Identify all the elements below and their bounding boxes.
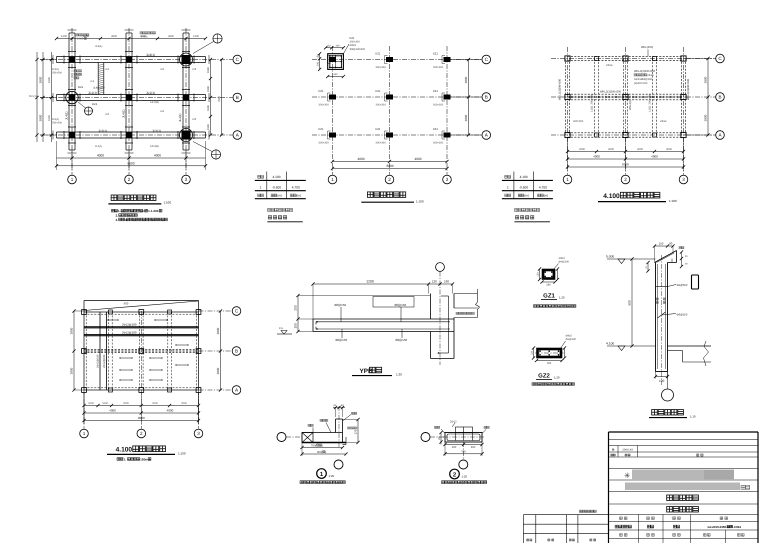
svg-text:7600: 7600 [218,96,221,102]
svg-text:✳: ✳ [624,471,630,480]
svg-text:370: 370 [355,429,358,434]
svg-text:3: 3 [682,177,685,182]
svg-text:1:10: 1:10 [690,415,696,419]
svg-text:60: 60 [669,241,673,245]
svg-text:1.: 1. [118,209,121,213]
svg-text:200×400: 200×400 [649,94,652,105]
svg-text:1: 1 [566,177,569,182]
svg-text:J-1: J-1 [90,79,94,83]
svg-text:): ) [322,444,323,447]
svg-text:3: 3 [446,177,449,182]
svg-text:150: 150 [659,241,664,245]
svg-text:350: 350 [334,73,339,76]
svg-text:2Φ12@180: 2Φ12@180 [97,354,100,368]
svg-text:150: 150 [327,44,332,47]
svg-text:150: 150 [316,54,319,59]
svg-text:KZ1: KZ1 [319,128,324,131]
svg-text:Φ6@200: Φ6@200 [677,314,688,317]
svg-text:1000: 1000 [102,402,108,405]
svg-text:1900: 1900 [207,105,210,111]
svg-text:=-1.200: =-1.200 [148,209,159,213]
svg-text:1000: 1000 [88,402,94,405]
svg-text:3800: 3800 [70,367,74,374]
svg-text:4.100: 4.100 [520,175,528,179]
svg-text:350×350: 350×350 [350,41,361,44]
svg-text:4Φ18: 4Φ18 [350,44,357,47]
svg-text:L1(1): L1(1) [591,106,594,112]
svg-text:3800: 3800 [704,76,708,83]
svg-text:JL1(1): JL1(1) [146,91,155,95]
svg-text:KZ1: KZ1 [319,90,324,93]
svg-text:120: 120 [536,272,539,277]
svg-text:200: 200 [336,44,341,47]
svg-text:150: 150 [294,323,298,329]
svg-text:JL3(1): JL3(1) [146,53,155,57]
svg-text:Φ8@150: Φ8@150 [394,303,406,307]
svg-text:8000: 8000 [127,161,134,165]
svg-text:350×350: 350×350 [376,66,387,69]
svg-text:240: 240 [546,283,551,286]
svg-text:300×500: 300×500 [559,78,562,89]
svg-text:1.: 1. [123,457,126,461]
svg-text:1200: 1200 [366,279,374,283]
svg-text:500: 500 [547,362,552,365]
svg-text:3800: 3800 [39,76,43,83]
svg-text:300: 300 [452,446,457,449]
svg-text:Φ6@200: Φ6@200 [559,261,570,264]
svg-text:2Φ14: 2Φ14 [606,64,613,67]
svg-text:1:100: 1:100 [416,199,424,203]
svg-text:4000: 4000 [109,409,116,413]
svg-text:4.100: 4.100 [603,193,620,200]
svg-text:Φ8@150: Φ8@150 [395,338,407,342]
svg-text:WKL4(1): WKL4(1) [629,100,632,110]
svg-text:(m): (m) [524,194,529,198]
svg-text:300: 300 [471,446,476,449]
svg-text:2: 2 [128,177,131,182]
svg-text:300×500: 300×500 [573,120,584,123]
svg-text:1900: 1900 [207,124,210,130]
svg-text:J-3: J-3 [192,67,196,71]
svg-text:5.000: 5.000 [606,254,614,258]
svg-text:Φ8@100/200: Φ8@100/200 [350,48,366,51]
svg-text:-0.600: -0.600 [140,36,148,39]
svg-text:3800: 3800 [70,327,74,334]
svg-text:1:20: 1:20 [559,296,565,300]
svg-text:2: 2 [624,177,627,182]
svg-text:GZ2: GZ2 [538,373,550,380]
svg-text:J-2: J-2 [105,67,109,71]
svg-text:B: B [236,95,239,100]
svg-text:4000: 4000 [651,155,658,159]
svg-text:200: 200 [316,61,319,66]
svg-text:8000: 8000 [386,164,393,168]
svg-text:KZ1: KZ1 [376,90,381,93]
svg-text:2Φ12@180: 2Φ12@180 [103,354,106,368]
svg-text:250×500: 250×500 [52,122,62,125]
svg-text:3800: 3800 [39,114,43,121]
svg-text:4Φ10: 4Φ10 [566,335,573,338]
svg-text:JL1(1): JL1(1) [88,91,97,95]
svg-text:JL4(1): JL4(1) [122,109,126,118]
svg-text:120: 120 [659,379,665,383]
svg-text:2000: 2000 [152,402,158,405]
svg-text:4000: 4000 [154,154,161,158]
svg-text:2Φ12: 2Φ12 [450,420,457,423]
svg-text:300×500: 300×500 [611,91,622,94]
svg-text:3800: 3800 [216,367,220,374]
svg-text:JL4(1): JL4(1) [95,145,102,148]
svg-text:GZ1: GZ1 [543,293,555,300]
svg-text:3: 3 [197,431,200,436]
svg-text:Φ8@150: Φ8@150 [335,338,347,342]
svg-text:(m): (m) [277,194,282,198]
svg-text:4000: 4000 [414,157,421,161]
svg-text:会: 会 [612,447,615,451]
svg-text:350×350: 350×350 [433,66,444,69]
svg-text:KZ1: KZ1 [433,90,438,93]
svg-text:L1(1): L1(1) [649,106,652,112]
svg-text:1:100: 1:100 [164,201,172,205]
svg-text:1200: 1200 [61,35,67,38]
svg-text:350×350: 350×350 [376,142,387,145]
svg-text:2000: 2000 [123,402,129,405]
svg-text:KZ1: KZ1 [350,37,355,40]
svg-text:300×500: 300×500 [687,78,690,89]
svg-text:(m): (m) [544,194,549,198]
svg-text:2000: 2000 [608,148,614,151]
svg-text:1900: 1900 [207,86,210,92]
svg-text:JL2(1): JL2(1) [152,129,161,133]
svg-text:B: B [718,95,721,100]
svg-text:JL3(1): JL3(1) [95,45,102,48]
svg-text:1900: 1900 [207,67,210,73]
svg-text:KZ1: KZ1 [433,128,438,131]
svg-text:B: B [485,95,488,100]
svg-text:KZ1: KZ1 [376,128,381,131]
svg-text:3.: 3. [116,218,119,222]
svg-text:2Φ12@180: 2Φ12@180 [122,330,137,334]
svg-text:1900: 1900 [48,77,51,83]
svg-text:3800: 3800 [704,114,708,121]
svg-text:DZ1: DZ1 [78,85,84,89]
svg-text:): ) [325,451,326,454]
svg-text:1: 1 [260,185,262,189]
svg-text:4000: 4000 [357,157,364,161]
svg-text:1: 1 [71,177,74,182]
svg-text:4.700: 4.700 [292,185,300,189]
svg-text:350×350: 350×350 [319,104,330,107]
svg-text:4.700: 4.700 [539,185,547,189]
svg-text:300×500: 300×500 [645,70,656,73]
svg-text:20XX.XX: 20XX.XX [622,448,633,451]
svg-text:2800: 2800 [168,35,174,38]
svg-text:700(: 700( [311,444,316,447]
svg-text:KZ1: KZ1 [433,53,438,56]
svg-text:Φ6@200: Φ6@200 [566,338,577,341]
svg-text:J-3: J-3 [192,117,196,121]
svg-text:JL4(1): JL4(1) [178,113,182,122]
svg-text:(m): (m) [297,194,302,198]
svg-text:2800: 2800 [111,35,117,38]
svg-text:WKL2(3): WKL2(3) [600,91,611,94]
svg-text:2: 2 [388,177,391,182]
svg-text:2000: 2000 [579,148,585,151]
svg-text:WKL1(3): WKL1(3) [687,89,690,100]
svg-text:900: 900 [628,300,632,306]
svg-text:250: 250 [294,305,298,311]
svg-text:4.100: 4.100 [116,447,133,454]
svg-text:1:100: 1:100 [669,199,677,203]
svg-text:2000: 2000 [666,148,672,151]
svg-text:J-2: J-2 [105,112,109,116]
svg-text:2.: 2. [116,213,119,217]
svg-text:1:100: 1:100 [178,452,186,456]
svg-text:1: 1 [331,177,334,182]
svg-text:3800: 3800 [216,327,220,334]
svg-text:180: 180 [444,279,449,283]
svg-text:250×500: 250×500 [52,72,62,75]
svg-text:Φ8@200: Φ8@200 [642,78,653,81]
svg-text:JL2(1): JL2(1) [98,129,107,133]
svg-text:2Φ10: 2Φ10 [559,257,566,260]
svg-text:2Φ12@180: 2Φ12@180 [122,323,137,327]
svg-text:4JL2(B): 4JL2(B) [150,101,159,104]
svg-text:120: 120 [530,350,533,355]
svg-text:4JL2(B): 4JL2(B) [150,145,159,148]
svg-text:4000: 4000 [167,409,174,413]
svg-text:350×350: 350×350 [433,142,444,145]
svg-text:900: 900 [124,302,129,306]
svg-text:1:20: 1:20 [462,474,468,478]
svg-text:1900: 1900 [48,115,51,121]
svg-text:1:20: 1:20 [396,372,402,376]
svg-text:-0.600: -0.600 [519,185,528,189]
svg-text:(2)300×500: (2)300×500 [634,82,648,85]
svg-text:3: 3 [185,177,188,182]
svg-text:350×350: 350×350 [433,104,444,107]
svg-text:KZ1: KZ1 [376,53,381,56]
svg-text:-0.600: -0.600 [272,185,281,189]
svg-text:1200: 1200 [193,35,199,38]
svg-text:4.100: 4.100 [606,341,614,345]
svg-text:4.100: 4.100 [273,175,281,179]
svg-text:WKL(300): WKL(300) [641,46,653,49]
svg-text:200×400: 200×400 [591,94,594,105]
svg-text:J-2: J-2 [160,109,164,113]
svg-text:WKL3(3): WKL3(3) [634,70,645,73]
svg-text:2: 2 [140,431,143,436]
svg-text:3800: 3800 [464,114,468,121]
svg-text:3800: 3800 [464,76,468,83]
svg-text:-0.600: -0.600 [76,38,84,41]
svg-text:350×350: 350×350 [376,104,387,107]
svg-text:900(: 900( [317,451,322,454]
svg-text:120: 120 [432,279,437,283]
svg-text:4000: 4000 [593,155,600,159]
svg-text:B: B [235,349,238,354]
svg-text:DL1(1): DL1(1) [29,95,37,98]
svg-text:4000: 4000 [97,154,104,158]
svg-text:2000: 2000 [637,148,643,151]
svg-text:350×350: 350×350 [319,142,330,145]
svg-text:J-2: J-2 [160,67,164,71]
svg-text:1: 1 [83,431,86,436]
svg-text:YPB: YPB [359,368,373,375]
svg-text:DZ1: DZ1 [92,102,98,106]
svg-text:2Φ14: 2Φ14 [660,120,667,123]
svg-text:1: 1 [507,185,509,189]
svg-text:1:20: 1:20 [554,376,560,380]
svg-text:2Φ16: 2Φ16 [647,74,654,77]
svg-text:JL4(1)250: JL4(1)250 [93,87,105,90]
svg-text:1:20: 1:20 [329,474,335,478]
svg-text:2000: 2000 [181,402,187,405]
svg-text:GJ-2015-0350-: GJ-2015-0350- [707,525,727,529]
svg-text:700: 700 [461,451,466,454]
svg-text:Φ8@150: Φ8@150 [334,303,346,307]
svg-text:WKL1(3): WKL1(3) [559,89,562,100]
svg-text:JL4(1): JL4(1) [65,111,69,120]
svg-text:Φ6@500: Φ6@500 [677,284,688,287]
svg-text:-C004: -C004 [733,525,741,529]
